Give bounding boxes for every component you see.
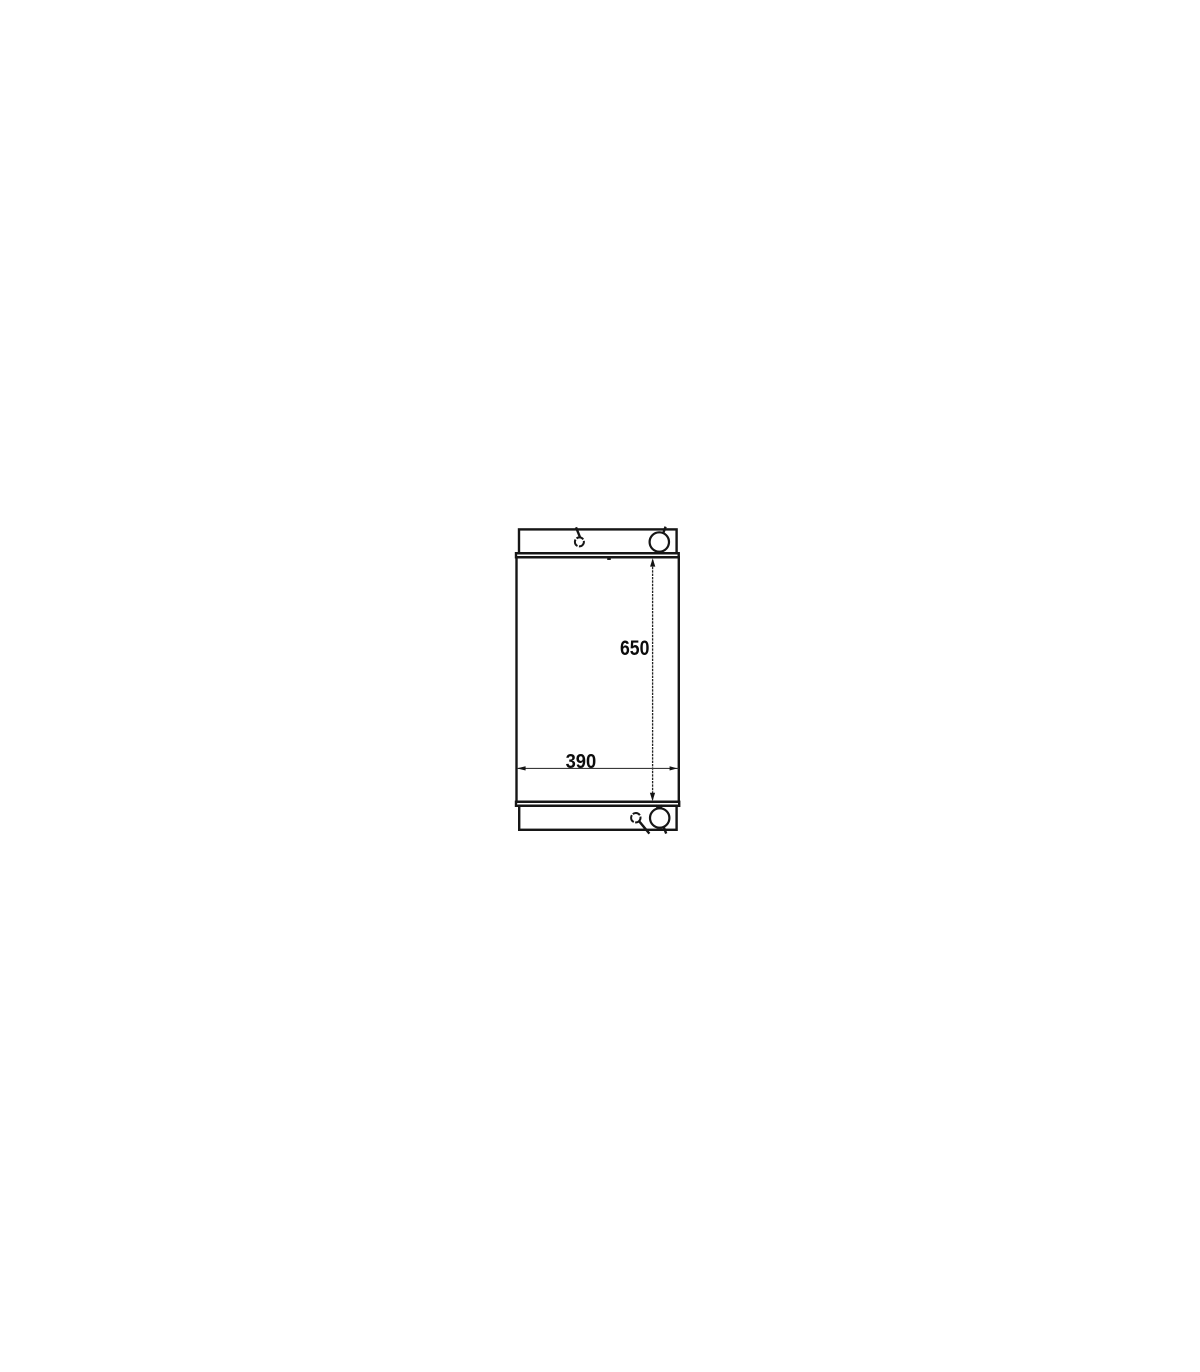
svg-text:650: 650 [620,636,649,660]
svg-text:390: 390 [566,751,597,773]
